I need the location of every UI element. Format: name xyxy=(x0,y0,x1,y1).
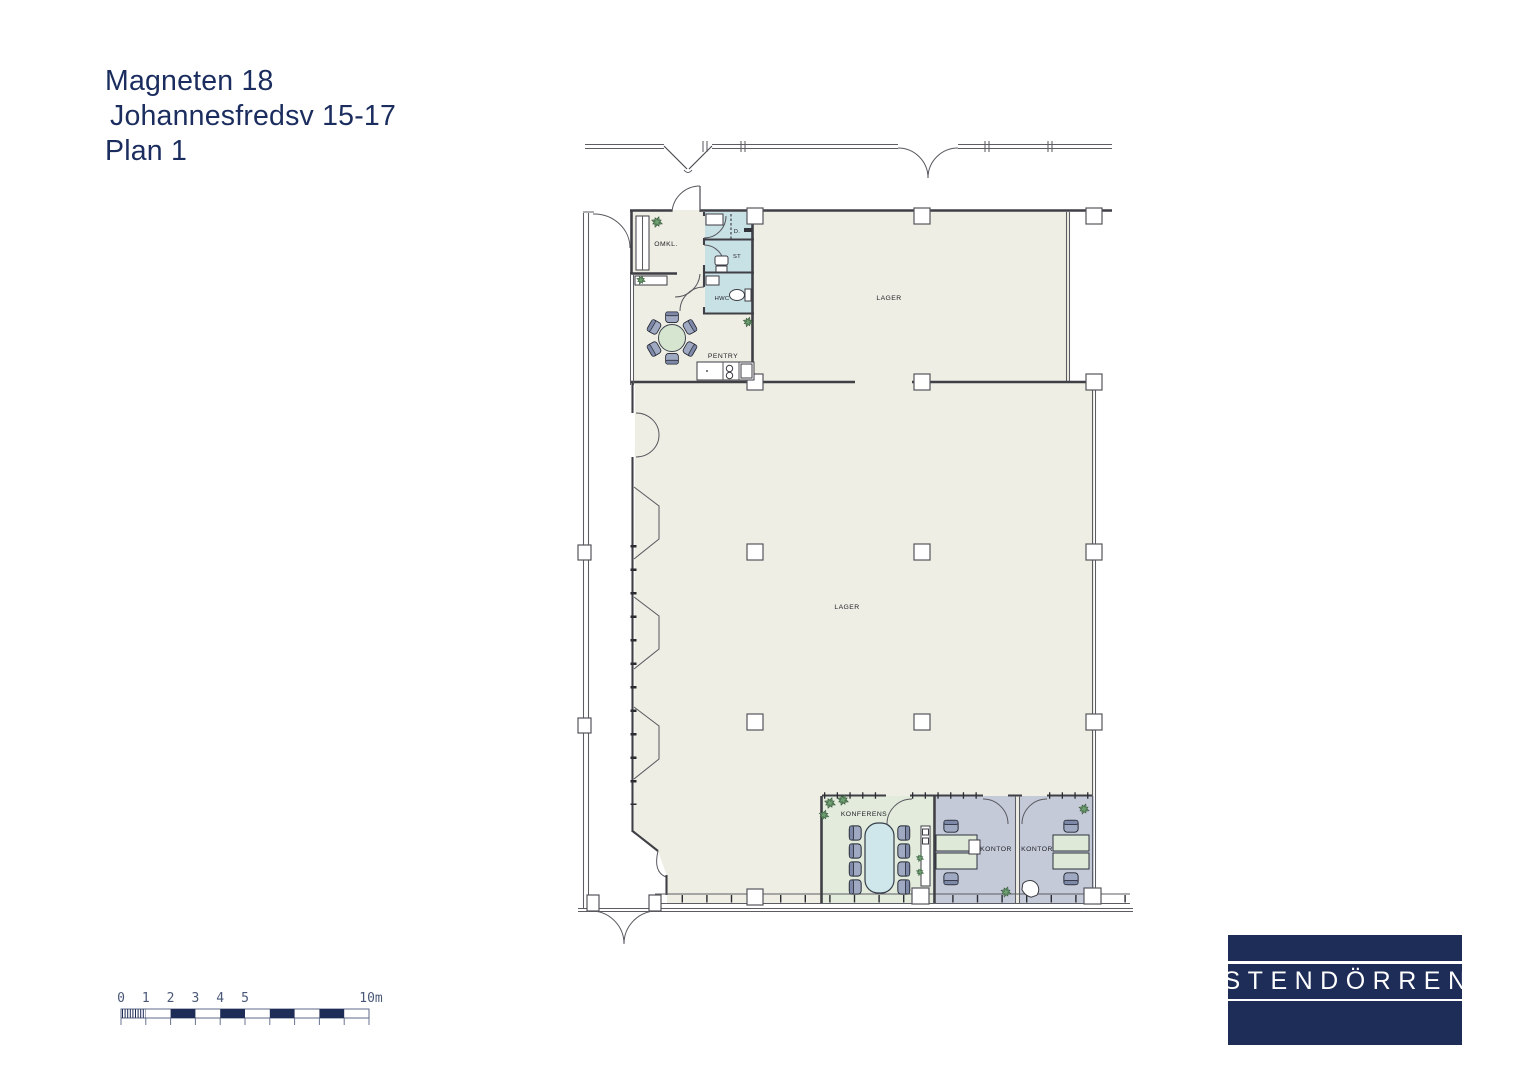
scale-bar: 0 1 2 3 4 5 10m xyxy=(90,988,395,1043)
chair xyxy=(944,873,958,885)
kitchen-counter xyxy=(697,362,754,380)
chair xyxy=(849,880,861,894)
conference-table xyxy=(865,823,894,893)
chair xyxy=(849,844,861,858)
double-door-leaves xyxy=(664,146,712,169)
floor-fills xyxy=(633,210,1094,904)
label-dusch: D. xyxy=(734,229,740,235)
chair xyxy=(849,826,861,840)
chair xyxy=(898,844,910,858)
chair xyxy=(1064,820,1078,832)
cleaning-sink xyxy=(715,256,728,265)
scale-label-2: 2 xyxy=(167,991,175,1006)
label-lager-upper: LAGER xyxy=(876,295,901,302)
exit-double-door-arcs xyxy=(593,911,655,944)
chair xyxy=(898,862,910,876)
adjacent-top-wall xyxy=(585,141,1112,178)
chair xyxy=(849,862,861,876)
scale-label-1: 1 xyxy=(142,991,150,1006)
chair xyxy=(898,826,910,840)
label-hwc: HWC xyxy=(715,296,730,302)
scale-label-3: 3 xyxy=(191,991,199,1006)
label-st: ST xyxy=(733,254,741,260)
label-kontor-left: KONTOR xyxy=(980,846,1012,853)
label-omkl: OMKL. xyxy=(654,241,677,248)
label-kontor-right: KONTOR xyxy=(1021,846,1053,853)
scale-label-5: 5 xyxy=(241,991,249,1006)
entrance-door-arc xyxy=(672,186,700,212)
lockers xyxy=(636,216,649,270)
shower-head xyxy=(744,228,752,232)
shower-bench xyxy=(706,214,723,225)
stendorren-logo: STENDÖRREN xyxy=(1228,935,1462,1045)
floor-plan: OMKL. D. ST HWC PENTRY LAGER LAGER KONFE… xyxy=(0,0,1527,1080)
chair xyxy=(1064,873,1078,885)
logo-band-mid: STENDÖRREN xyxy=(1228,964,1462,999)
logo-band-top xyxy=(1228,935,1462,961)
label-konferens: KONFERENS xyxy=(841,811,887,818)
scale-label-10m: 10m xyxy=(359,991,383,1006)
chair xyxy=(944,820,958,832)
chair xyxy=(666,353,679,364)
left-corridor-wall xyxy=(578,212,630,908)
label-pentry: PENTRY xyxy=(708,353,738,360)
logo-text: STENDÖRREN xyxy=(1217,967,1474,996)
hwc-sink xyxy=(706,276,719,285)
lager-upper-area xyxy=(753,210,1069,383)
corridor-door-arc xyxy=(593,214,630,248)
round-table xyxy=(659,325,686,352)
chair xyxy=(666,312,679,323)
logo-band-bottom xyxy=(1228,1001,1462,1045)
scale-label-4: 4 xyxy=(216,991,224,1006)
st-room xyxy=(705,240,753,273)
cleaning-cabinet xyxy=(716,266,727,272)
toilet-tank xyxy=(745,289,751,301)
chair xyxy=(898,880,910,894)
label-lager-main: LAGER xyxy=(834,604,859,611)
toilet-bowl xyxy=(730,290,745,301)
scale-label-0: 0 xyxy=(117,991,125,1006)
double-door-arcs xyxy=(898,148,958,178)
